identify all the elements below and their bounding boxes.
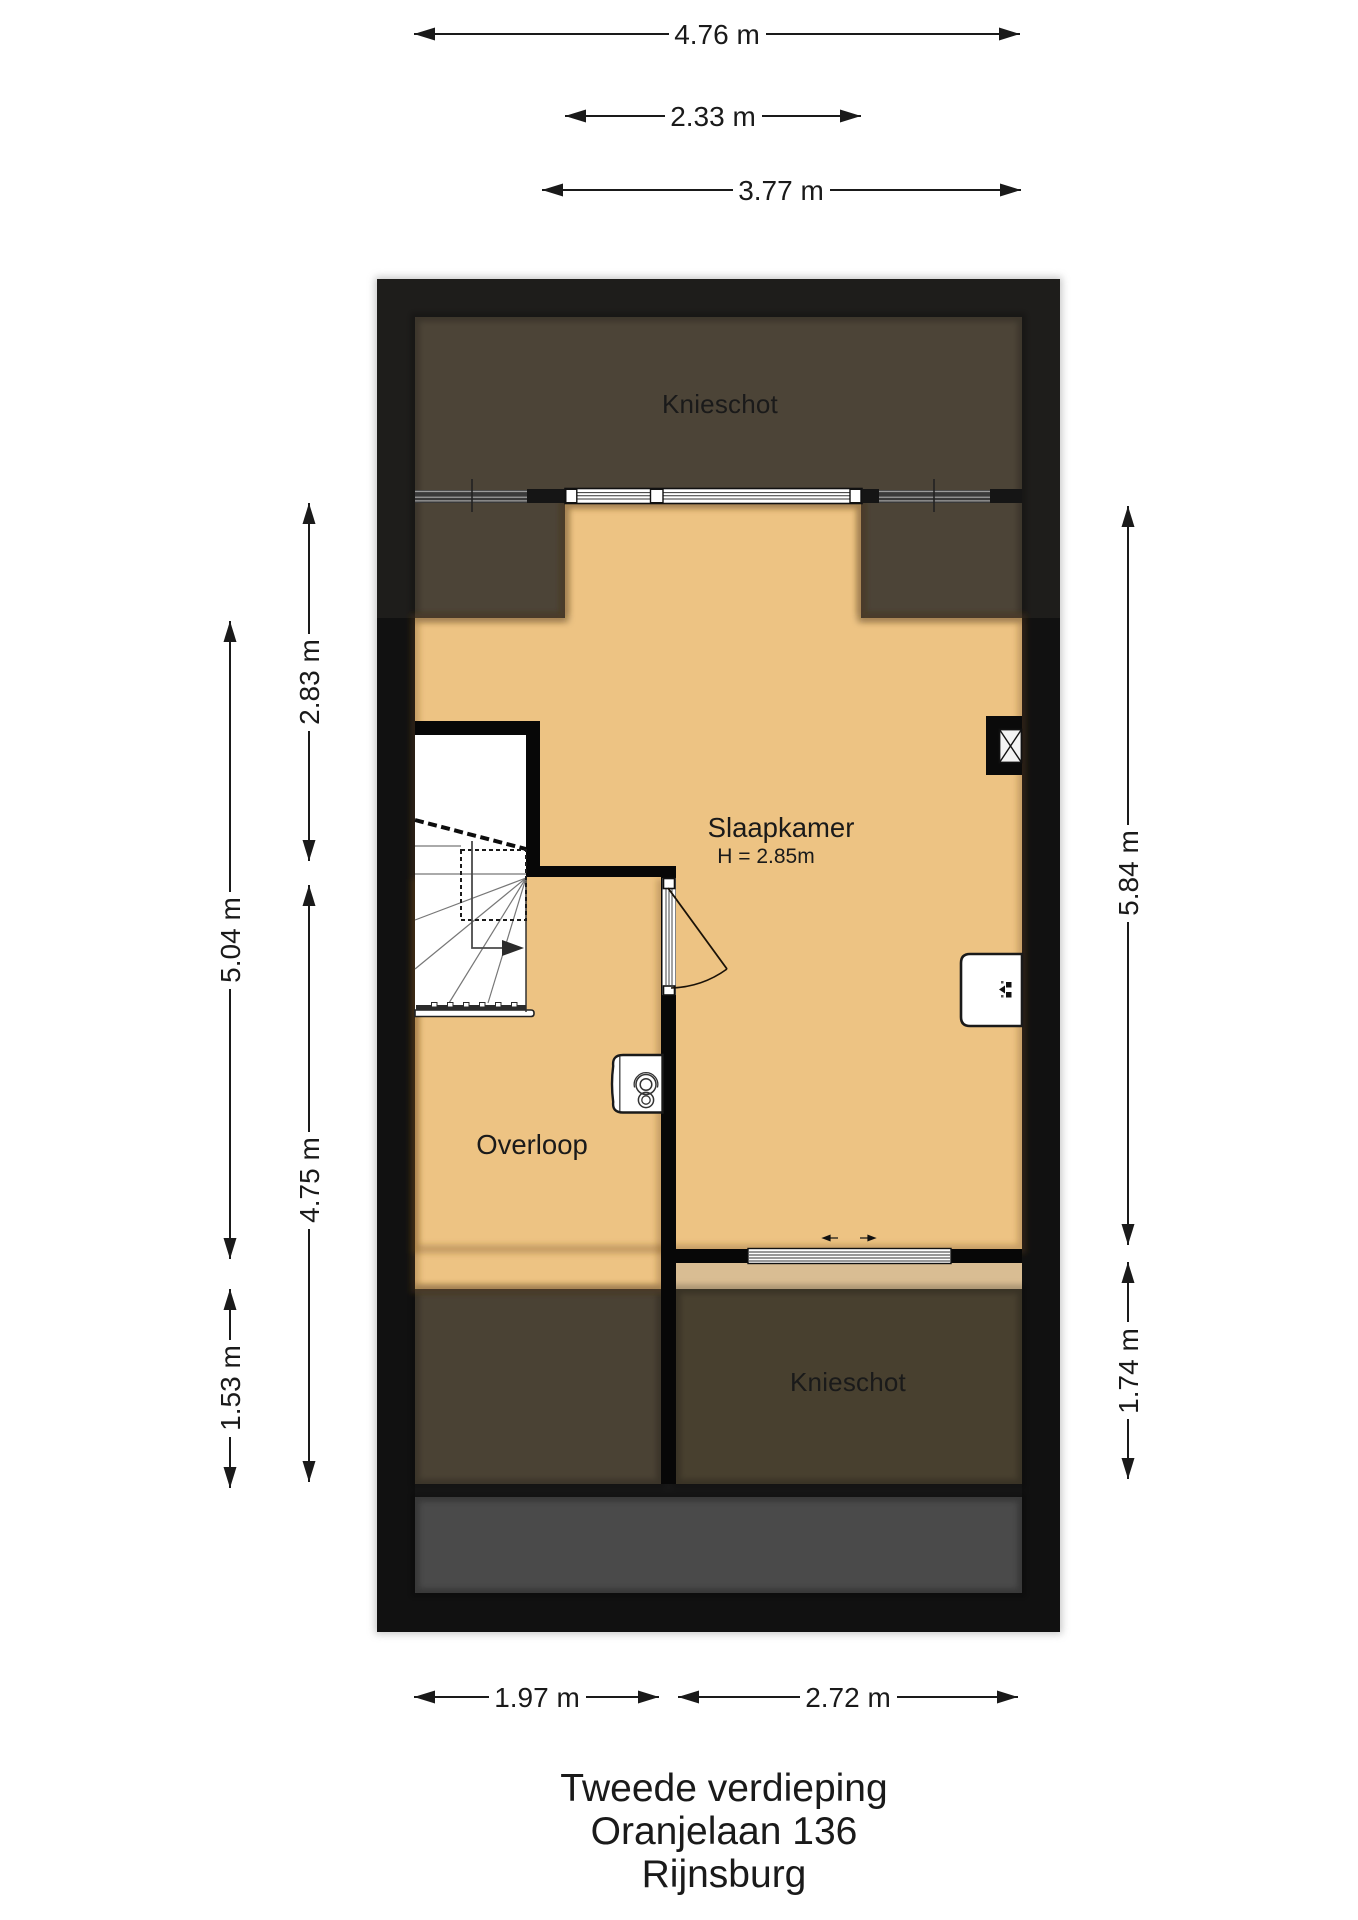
svg-text:5.04 m: 5.04 m: [215, 897, 246, 983]
svg-text:2.33 m: 2.33 m: [670, 101, 756, 132]
svg-text:Overloop: Overloop: [476, 1129, 588, 1160]
svg-text:Tweede verdieping: Tweede verdieping: [560, 1767, 887, 1810]
svg-text:Oranjelaan 136: Oranjelaan 136: [591, 1810, 858, 1853]
svg-text:1.97 m: 1.97 m: [494, 1682, 580, 1713]
svg-text:H = 2.85m: H = 2.85m: [717, 845, 814, 868]
svg-text:Knieschot: Knieschot: [662, 389, 779, 419]
svg-text:Slaapkamer: Slaapkamer: [708, 812, 855, 843]
svg-text:4.76 m: 4.76 m: [674, 19, 760, 50]
svg-text:5.84 m: 5.84 m: [1113, 830, 1144, 916]
svg-text:Knieschot: Knieschot: [790, 1367, 907, 1397]
svg-text:1.74 m: 1.74 m: [1113, 1328, 1144, 1414]
svg-text:2.83 m: 2.83 m: [294, 639, 325, 725]
svg-text:4.75 m: 4.75 m: [294, 1137, 325, 1223]
svg-text:2.72 m: 2.72 m: [805, 1682, 891, 1713]
svg-text:Rijnsburg: Rijnsburg: [642, 1853, 807, 1896]
svg-text:1.53 m: 1.53 m: [215, 1345, 246, 1431]
svg-text:3.77 m: 3.77 m: [738, 175, 824, 206]
